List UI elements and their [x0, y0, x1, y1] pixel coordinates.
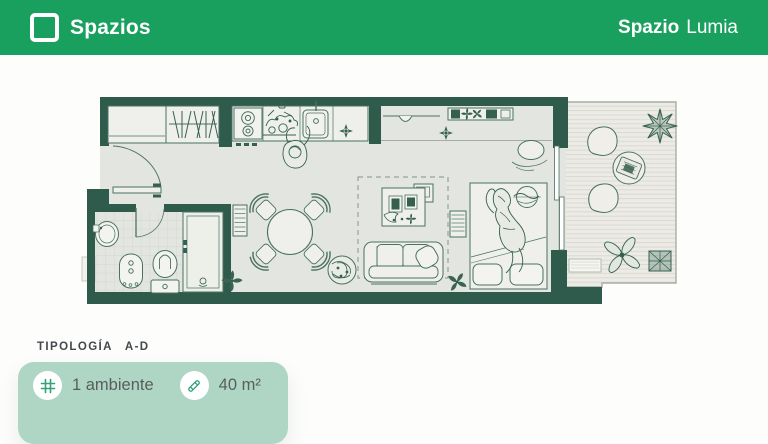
doormat	[569, 259, 601, 272]
wall-bath-top-a	[87, 204, 136, 212]
header: Spazios SpazioLumia	[0, 0, 768, 55]
typology-row: TIPOLOGÍA A-D	[37, 341, 150, 353]
typology-value: A-D	[125, 341, 150, 353]
project-name: SpazioLumia	[618, 17, 738, 39]
wall-top	[100, 97, 568, 106]
pillow-right	[510, 264, 543, 285]
grid-hash-icon	[33, 371, 62, 400]
closet	[108, 106, 219, 143]
dining-table	[268, 210, 313, 255]
brand-logo-icon	[30, 13, 59, 42]
wall-bottom	[87, 292, 567, 304]
balcony-chair-2	[589, 184, 618, 213]
toilet	[151, 251, 179, 294]
project-name-light: Lumia	[686, 17, 738, 38]
wall-balcony-ext	[567, 287, 602, 304]
typology-label: TIPOLOGÍA	[37, 341, 113, 353]
coffee-table	[382, 184, 433, 226]
ruler-icon	[180, 371, 209, 400]
project-name-bold: Spazio	[618, 17, 679, 38]
balcony-chair-1	[588, 127, 617, 156]
bidet	[120, 254, 143, 288]
dense-plant	[649, 251, 671, 271]
hall-dresser	[233, 205, 247, 236]
pouf	[328, 256, 356, 284]
wall-bath-left	[87, 204, 95, 304]
wall-right-bottom	[551, 250, 567, 304]
brand-name: Spazios	[70, 16, 151, 40]
sofa	[364, 242, 443, 284]
wall-shelf	[448, 106, 513, 123]
brand: Spazios	[30, 13, 151, 42]
wall-kitchen-pier	[369, 97, 381, 144]
rooms-item: 1 ambiente	[33, 371, 154, 400]
area-label: 40 m²	[219, 376, 261, 395]
rooms-label: 1 ambiente	[72, 376, 154, 395]
balcony-table	[613, 152, 645, 184]
shower	[183, 212, 223, 292]
star-plant	[643, 109, 677, 143]
living-dresser	[450, 211, 466, 237]
wall-closet-pier	[219, 97, 232, 147]
wall-entry-block	[87, 189, 109, 205]
pillow-left	[473, 264, 502, 285]
wall-right-top	[553, 97, 568, 148]
wall-bath-top-b	[164, 204, 230, 212]
area-item: 40 m²	[180, 371, 261, 400]
bed	[470, 183, 547, 289]
